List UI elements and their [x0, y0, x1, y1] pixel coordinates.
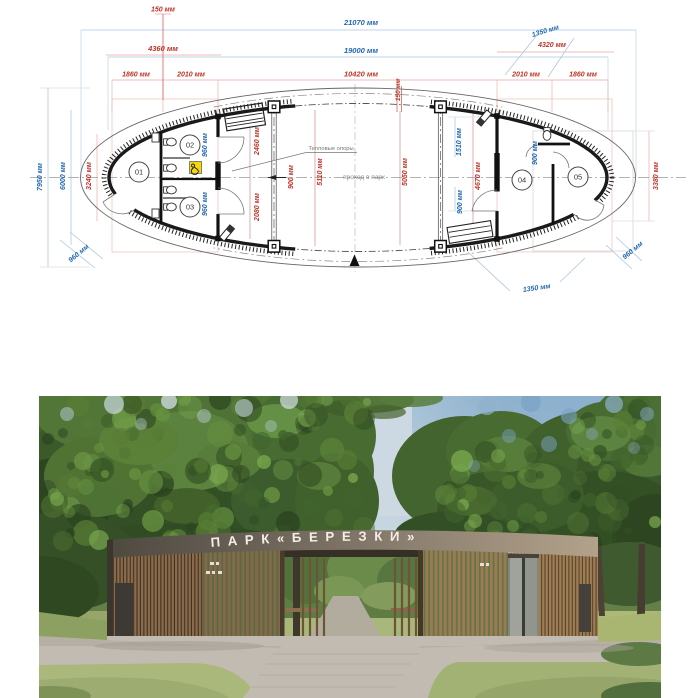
svg-text:6000 мм: 6000 мм: [60, 161, 67, 190]
svg-text:21070 мм: 21070 мм: [343, 18, 378, 27]
svg-text:150 мм: 150 мм: [395, 79, 402, 101]
svg-text:150 мм: 150 мм: [151, 7, 176, 14]
svg-text:02: 02: [186, 141, 194, 150]
svg-text:960 мм: 960 мм: [68, 243, 91, 264]
svg-text:2460 мм: 2460 мм: [254, 126, 261, 156]
svg-text:900 мм: 900 мм: [457, 189, 464, 214]
svg-text:900 мм: 900 мм: [288, 164, 295, 189]
svg-text:5110 мм: 5110 мм: [317, 158, 324, 186]
svg-text:5050 мм: 5050 мм: [402, 157, 409, 186]
svg-text:4670 мм: 4670 мм: [475, 161, 482, 191]
svg-text:960 мм: 960 мм: [202, 191, 209, 216]
svg-text:1510 мм: 1510 мм: [456, 127, 463, 156]
svg-text:03: 03: [186, 203, 194, 212]
svg-text:3240 мм: 3240 мм: [86, 161, 93, 190]
svg-text:960 мм: 960 мм: [202, 132, 209, 157]
svg-text:4360 мм: 4360 мм: [147, 44, 178, 53]
svg-text:7950 мм: 7950 мм: [37, 162, 44, 191]
svg-text:19000 мм: 19000 мм: [344, 46, 378, 55]
svg-text:1860 мм: 1860 мм: [569, 72, 598, 79]
svg-text:1350 мм: 1350 мм: [523, 283, 552, 294]
svg-text:900 мм: 900 мм: [532, 140, 539, 165]
svg-text:2010 мм: 2010 мм: [511, 72, 541, 79]
svg-text:1350 мм: 1350 мм: [531, 24, 560, 39]
svg-text:2010 мм: 2010 мм: [176, 72, 206, 79]
svg-text:10420 мм: 10420 мм: [344, 70, 378, 79]
svg-text:04: 04: [518, 176, 526, 185]
svg-text:проход в парк: проход в парк: [343, 174, 385, 181]
svg-text:3380 мм: 3380 мм: [653, 161, 660, 190]
svg-text:01: 01: [135, 168, 143, 177]
svg-text:4320 мм: 4320 мм: [537, 42, 567, 49]
svg-text:1860 мм: 1860 мм: [122, 72, 151, 79]
svg-text:2080 мм: 2080 мм: [254, 192, 261, 222]
svg-text:05: 05: [574, 173, 582, 182]
svg-text:Тепловые опоры: Тепловые опоры: [308, 146, 353, 152]
